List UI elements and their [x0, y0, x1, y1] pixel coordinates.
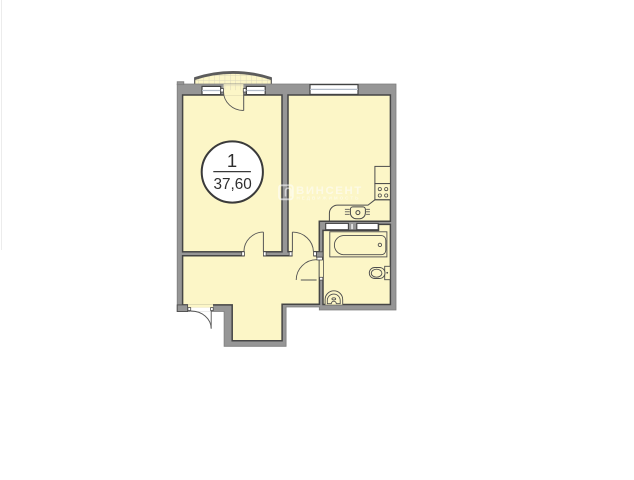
- svg-text:37,60: 37,60: [213, 176, 251, 193]
- svg-text:1: 1: [227, 150, 237, 171]
- svg-text:НЕДВИЖИМОСТЬ: НЕДВИЖИМОСТЬ: [297, 196, 361, 201]
